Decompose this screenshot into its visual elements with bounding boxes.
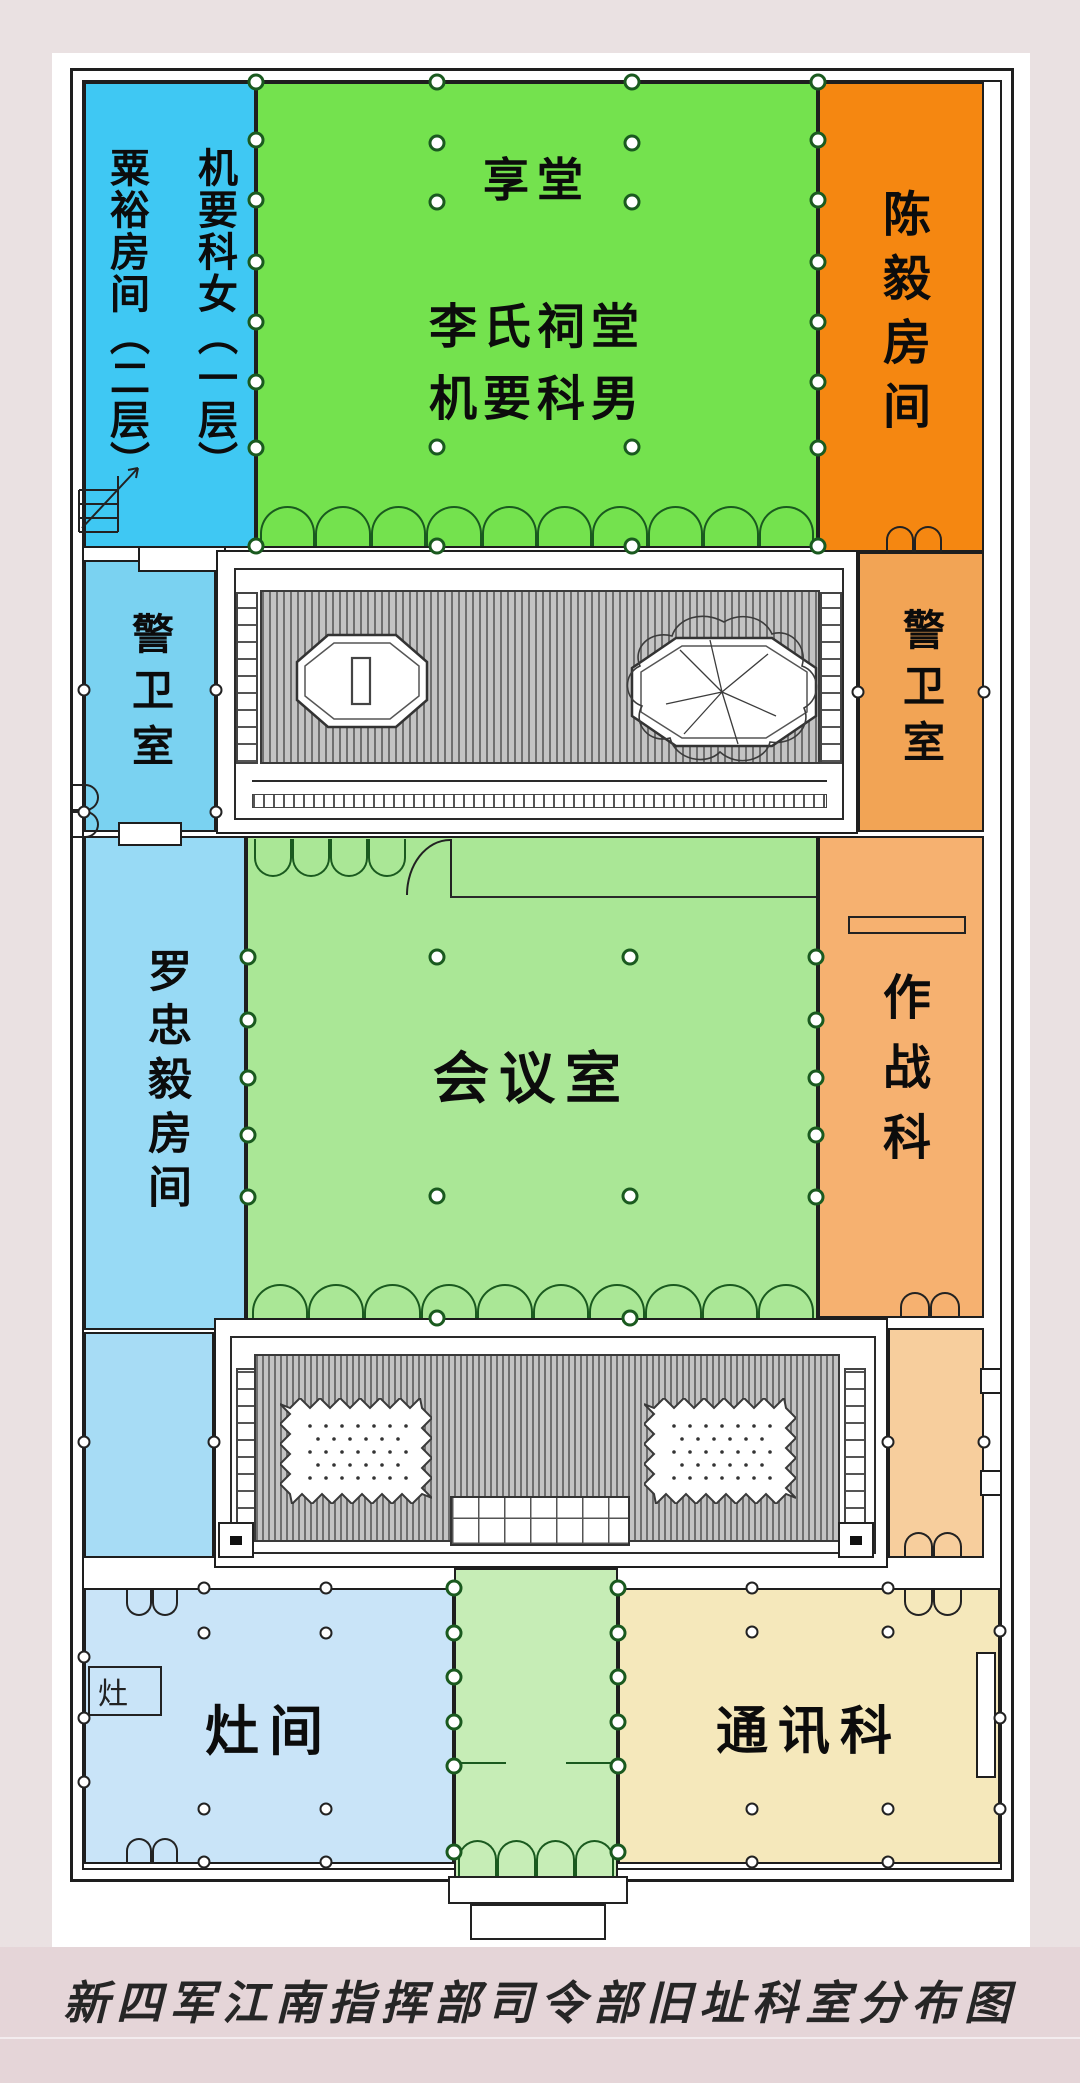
- column-dot: [746, 1626, 759, 1639]
- column-dot: [810, 74, 827, 91]
- caption-bar: 新四军江南指挥部司令部旧址科室分布图: [0, 1947, 1080, 2083]
- room-annex-west: [84, 1332, 214, 1558]
- column-dot: [610, 1580, 627, 1597]
- south-hall-door-arcs: [458, 1840, 614, 1876]
- column-dot: [320, 1856, 333, 1869]
- column-dot: [810, 374, 827, 391]
- meeting-top-door-arcs: [254, 839, 406, 877]
- column-dot: [810, 192, 827, 209]
- column-dot: [882, 1856, 895, 1869]
- guard-right-door-icon: [886, 526, 942, 552]
- courtyard-north-left-colonnade: [236, 592, 258, 764]
- courtyard-north-line: [252, 780, 827, 782]
- room-meeting: 会议室: [246, 836, 818, 1330]
- column-dot: [624, 74, 641, 91]
- room-comms: 通讯科: [618, 1588, 1000, 1864]
- column-dot: [78, 806, 91, 819]
- column-dot: [240, 1012, 257, 1029]
- column-dot: [248, 192, 265, 209]
- column-dot: [78, 1712, 91, 1725]
- citang-label: 李氏祠堂 机要科男: [258, 292, 816, 436]
- column-dot: [198, 1582, 211, 1595]
- column-dot: [248, 374, 265, 391]
- column-dot: [208, 1436, 221, 1449]
- column-dot: [240, 1127, 257, 1144]
- column-dot: [810, 254, 827, 271]
- xiangtang-label: 享堂: [258, 144, 816, 210]
- room-suyu-labels: 粟裕房间（二层） 机要科女（一层）: [97, 147, 243, 483]
- column-dot: [248, 74, 265, 91]
- kitchen-top-door-icon: [126, 1590, 178, 1616]
- courtyard-south-right-colonnade: [844, 1368, 866, 1528]
- courtyard-corner-block: [218, 1522, 254, 1558]
- stove-box: 灶: [88, 1666, 162, 1716]
- courtyard-south: [214, 1318, 888, 1568]
- citang-line1: 李氏祠堂: [258, 292, 816, 364]
- column-dot: [429, 194, 446, 211]
- annex-east-door-icon: [904, 1532, 962, 1558]
- column-dot: [610, 1714, 627, 1731]
- stove-label: 灶: [90, 1669, 128, 1713]
- chenyi-label: 陈毅房间: [866, 189, 936, 445]
- column-dot: [808, 1012, 825, 1029]
- column-dot: [446, 1625, 463, 1642]
- guard-right-label: 警卫室: [891, 608, 952, 776]
- stairs-icon: [76, 460, 142, 534]
- room-luozhongyi: 罗忠毅房间: [84, 836, 246, 1330]
- column-dot: [622, 1310, 639, 1327]
- column-dot: [78, 1436, 91, 1449]
- column-dot: [210, 684, 223, 697]
- column-dot: [978, 686, 991, 699]
- column-dot: [198, 1627, 211, 1640]
- room-guard-left: 警卫室: [84, 560, 216, 832]
- column-dot: [446, 1758, 463, 1775]
- column-dot: [248, 314, 265, 331]
- citang-line2: 机要科男: [258, 364, 816, 436]
- column-dot: [320, 1627, 333, 1640]
- jiyao-women-label: 机要科女（一层）: [185, 147, 243, 483]
- courtyard-corner-block: [838, 1522, 874, 1558]
- column-dot: [240, 1189, 257, 1206]
- column-dot: [610, 1669, 627, 1686]
- column-dot: [198, 1856, 211, 1869]
- room-chenyi: 陈毅房间: [818, 82, 984, 552]
- pond-tree-icon: [614, 604, 834, 780]
- room-kitchen: 灶间: [84, 1588, 454, 1864]
- guard-left-door-niche: [138, 546, 226, 572]
- column-dot: [198, 1803, 211, 1816]
- column-dot: [429, 538, 446, 555]
- column-dot: [446, 1714, 463, 1731]
- south-hall-stub-left: [458, 1762, 506, 1764]
- column-dot: [882, 1582, 895, 1595]
- column-dot: [429, 135, 446, 152]
- column-dot: [248, 538, 265, 555]
- entrance-hall-grid: [450, 1496, 630, 1546]
- column-dot: [446, 1844, 463, 1861]
- hall-door-arcs: [260, 506, 814, 546]
- south-hall-stub-right: [566, 1762, 614, 1764]
- kitchen-bottom-door-icon: [126, 1838, 178, 1864]
- luozhongyi-door-niche: [118, 822, 182, 846]
- column-dot: [978, 1436, 991, 1449]
- column-dot: [78, 1651, 91, 1664]
- column-dot: [446, 1580, 463, 1597]
- flowerbed-icon: [280, 1398, 432, 1504]
- column-dot: [240, 1070, 257, 1087]
- kitchen-label: 灶间: [205, 1687, 333, 1766]
- luozhongyi-label: 罗忠毅房间: [133, 948, 197, 1218]
- courtyard-north-tickband: [252, 794, 827, 808]
- column-dot: [320, 1803, 333, 1816]
- column-dot: [882, 1436, 895, 1449]
- east-wall-window: [980, 1470, 1002, 1496]
- column-dot: [429, 1188, 446, 1205]
- caption-title: 新四军江南指挥部司令部旧址科室分布图: [0, 1967, 1080, 2033]
- column-dot: [248, 254, 265, 271]
- column-dot: [624, 194, 641, 211]
- column-dot: [746, 1582, 759, 1595]
- meeting-bottom-door-arcs: [252, 1284, 814, 1322]
- room-ancestral-hall: 享堂 李氏祠堂 机要科男: [256, 82, 818, 548]
- room-guard-right: 警卫室: [858, 552, 984, 832]
- column-dot: [994, 1803, 1007, 1816]
- column-dot: [624, 439, 641, 456]
- column-dot: [446, 1669, 463, 1686]
- meeting-vestibule-wall: [450, 896, 816, 898]
- column-dot: [610, 1758, 627, 1775]
- column-dot: [810, 314, 827, 331]
- operations-table: [848, 916, 966, 934]
- room-annex-east: [888, 1328, 984, 1558]
- column-dot: [78, 684, 91, 697]
- column-dot: [624, 135, 641, 152]
- entrance-porch-inner: [470, 1904, 606, 1940]
- column-dot: [808, 949, 825, 966]
- column-dot: [622, 1188, 639, 1205]
- page: 粟裕房间（二层） 机要科女（一层） 享堂 李氏祠堂 机要科男 陈毅房间 警卫室: [0, 0, 1080, 2083]
- pond-icon: [294, 632, 430, 730]
- column-dot: [610, 1625, 627, 1642]
- column-dot: [746, 1856, 759, 1869]
- operations-label: 作战科: [866, 972, 936, 1182]
- caption-divider: [0, 2037, 1080, 2039]
- column-dot: [78, 1776, 91, 1789]
- east-wall-window: [980, 1368, 1002, 1394]
- meeting-label: 会议室: [248, 1034, 816, 1115]
- room-south-hall: [454, 1568, 618, 1878]
- column-dot: [810, 538, 827, 555]
- comms-top-door-icon: [904, 1590, 962, 1616]
- column-dot: [810, 440, 827, 457]
- meeting-vestibule-leaf: [450, 839, 452, 897]
- column-dot: [624, 538, 641, 555]
- column-dot: [248, 440, 265, 457]
- column-dot: [610, 1844, 627, 1861]
- column-dot: [240, 949, 257, 966]
- column-dot: [746, 1803, 759, 1816]
- column-dot: [994, 1625, 1007, 1638]
- comms-label: 通讯科: [716, 1689, 902, 1764]
- column-dot: [248, 132, 265, 149]
- column-dot: [429, 439, 446, 456]
- column-dot: [808, 1127, 825, 1144]
- column-dot: [210, 806, 223, 819]
- entrance-porch-outer: [448, 1876, 628, 1904]
- column-dot: [429, 1310, 446, 1327]
- guard-left-label: 警卫室: [120, 612, 181, 780]
- room-operations: 作战科: [818, 836, 984, 1318]
- column-dot: [808, 1070, 825, 1087]
- flowerbed-icon: [644, 1398, 796, 1504]
- column-dot: [429, 74, 446, 91]
- courtyard-north: [216, 550, 858, 834]
- column-dot: [622, 949, 639, 966]
- column-dot: [810, 132, 827, 149]
- column-dot: [429, 949, 446, 966]
- column-dot: [882, 1803, 895, 1816]
- column-dot: [852, 686, 865, 699]
- column-dot: [808, 1189, 825, 1206]
- operations-door-icon: [900, 1292, 960, 1318]
- suyu-label: 粟裕房间（二层）: [97, 147, 155, 483]
- column-dot: [882, 1626, 895, 1639]
- column-dot: [994, 1712, 1007, 1725]
- column-dot: [320, 1582, 333, 1595]
